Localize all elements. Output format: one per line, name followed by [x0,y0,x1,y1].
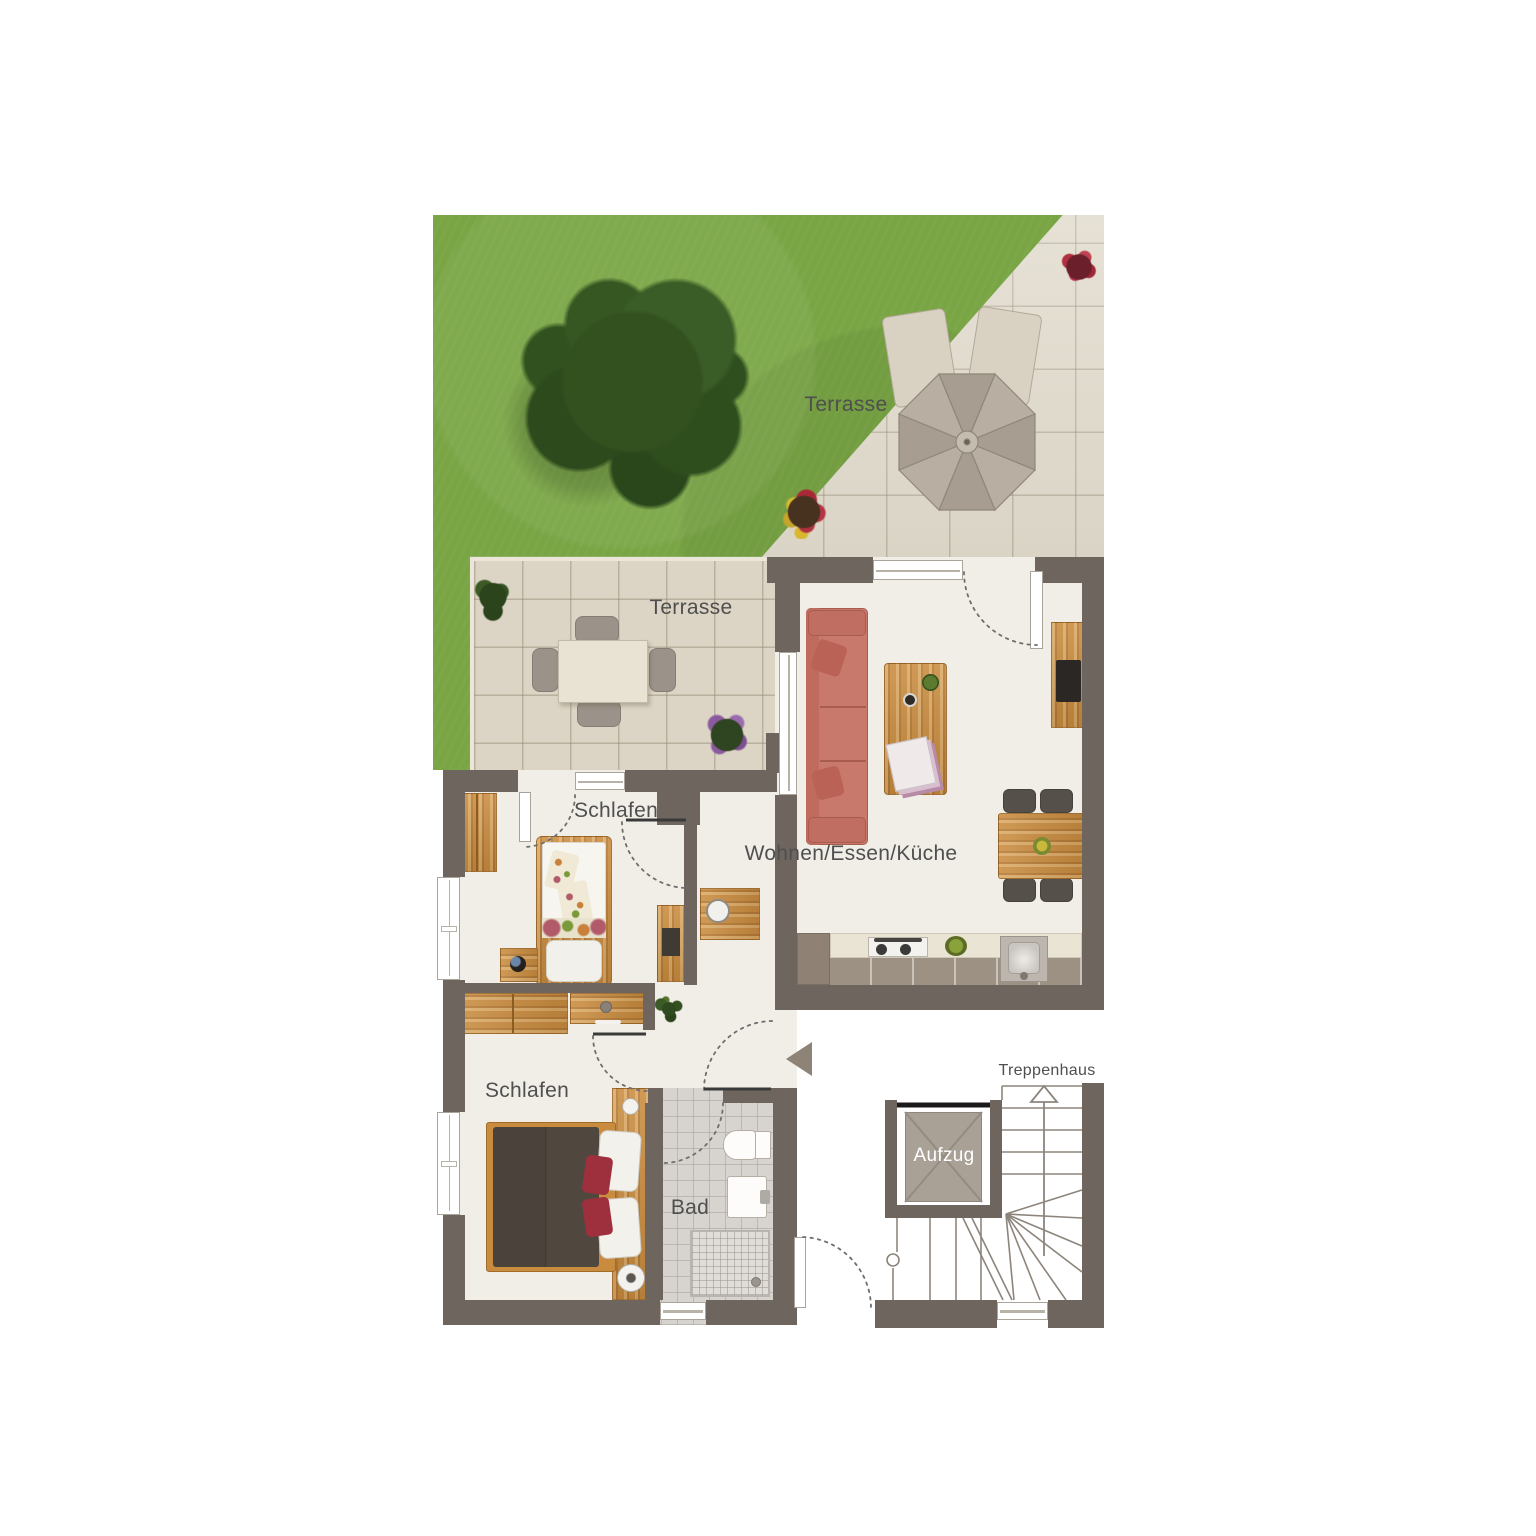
parasol-icon [899,374,1035,510]
room-label-bedroom-lower: Schlafen [485,1079,569,1103]
room-label-bedroom-upper: Schlafen [574,799,658,823]
room-label-bath: Bad [671,1196,709,1220]
floor-plan: Terrasse Terrasse Wohnen/Essen/Küche Sch… [0,0,1536,1536]
door-swing-arcs [523,572,1037,1308]
room-label-stairwell: Treppenhaus [999,1062,1096,1080]
staircase [887,1086,1082,1300]
plan-linework [0,0,1536,1536]
room-label-elevator: Aufzug [914,1145,975,1167]
stair-up-arrow-icon [1031,1086,1057,1256]
room-label-terrace-lower: Terrasse [650,596,733,620]
room-label-living: Wohnen/Essen/Küche [745,842,958,866]
room-label-terrace-upper: Terrasse [805,393,888,417]
